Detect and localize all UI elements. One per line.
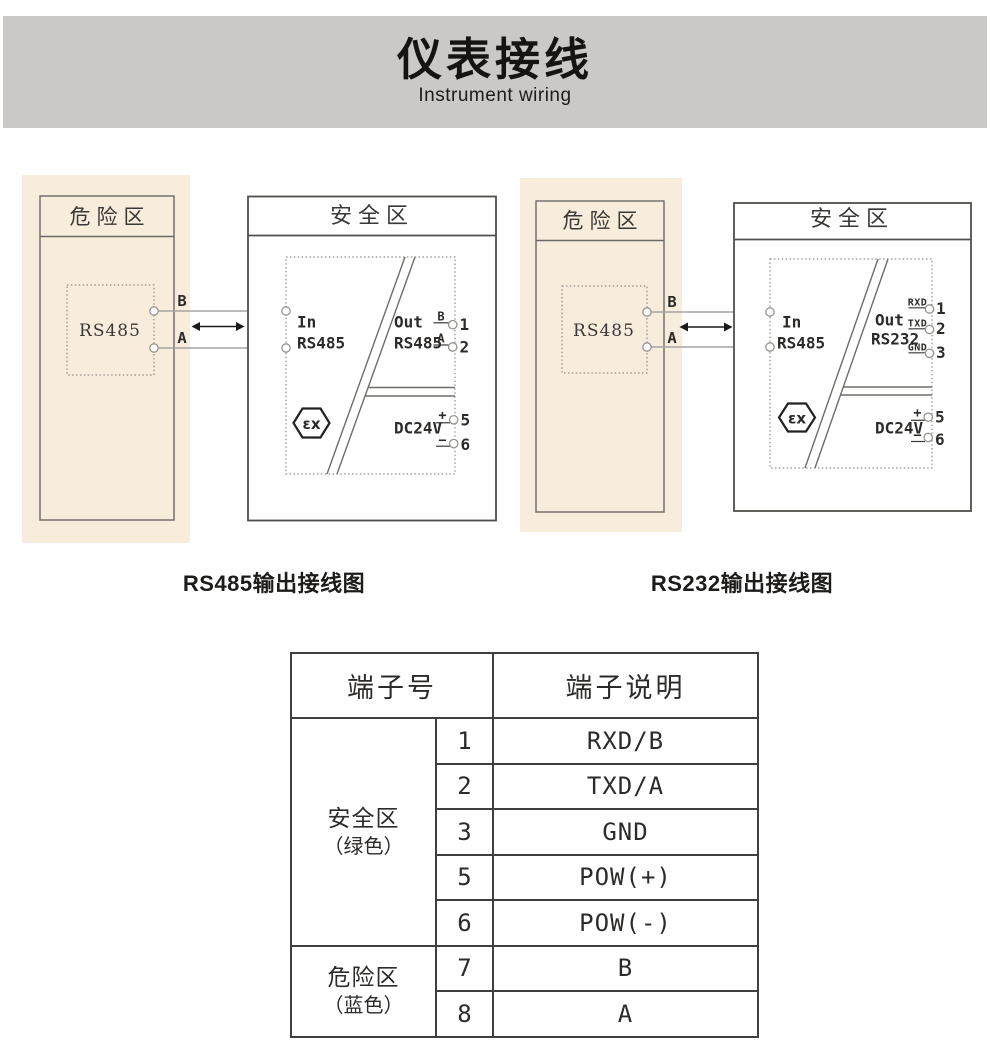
zone-cell-safe: 安全区 （绿色）	[291, 718, 436, 946]
page-header: 仪表接线 Instrument wiring	[3, 16, 987, 128]
danger-zone-title: 危险区	[70, 205, 151, 229]
rs485-wiring-diagram: 危险区 RS485 B A 7 8 安全区	[22, 175, 496, 543]
bidirectional-arrow	[680, 323, 733, 332]
terminal-1-number: 1	[936, 299, 946, 318]
device-terminal-a	[150, 344, 158, 352]
terminal-desc-cell: B	[493, 946, 758, 992]
bidirectional-arrow	[192, 322, 245, 331]
wire-label-b: B	[177, 292, 186, 310]
rs232-diagram-caption: RS232输出接线图	[612, 566, 872, 598]
module-terminal-7	[766, 308, 774, 316]
terminal-6-circle	[924, 433, 932, 441]
rs232-wiring-diagram: 危险区 RS485 B A 7 8 安全区	[520, 178, 971, 532]
device-terminal-b	[643, 308, 651, 316]
page-title: 仪表接线	[3, 16, 987, 82]
zone-color-note: （蓝色）	[292, 993, 435, 1019]
terminal-1-number: 1	[460, 315, 470, 334]
module-terminal-8	[766, 343, 774, 351]
terminal-1-circle	[449, 321, 457, 329]
zone-name: 安全区	[292, 804, 435, 834]
terminal-6-number: 6	[935, 430, 945, 449]
device-terminal-b	[150, 307, 158, 315]
terminal-table: 端子号 端子说明 安全区 （绿色） 1 RXD/B 2 TXD/A 3 GND …	[290, 652, 759, 1038]
in-type-label: RS485	[777, 334, 825, 353]
page-subtitle: Instrument wiring	[3, 86, 987, 105]
safe-zone-box	[248, 197, 496, 521]
safe-zone-title: 安全区	[330, 204, 414, 229]
rs485-diagram-caption: RS485输出接线图	[144, 566, 404, 598]
power-plus-sign: +	[438, 408, 446, 424]
out-label: Out	[394, 313, 423, 332]
power-label: DC24V	[394, 419, 443, 438]
terminal-6-number: 6	[461, 435, 471, 454]
out-type-label: RS485	[394, 334, 442, 353]
terminal-2-number: 2	[936, 319, 946, 338]
terminal-1-circle	[925, 305, 933, 313]
device-terminal-a	[643, 343, 651, 351]
out-signal-gnd-label: GND	[908, 343, 928, 354]
in-label: In	[297, 313, 316, 332]
wire-label-a: A	[667, 329, 677, 347]
zone-cell-danger: 危险区 （蓝色）	[291, 946, 436, 1037]
zone-color-note: （绿色）	[292, 834, 435, 860]
terminal-desc-cell: TXD/A	[493, 764, 758, 810]
wire-label-b: B	[667, 293, 676, 311]
ex-mark-text: εx	[302, 415, 320, 433]
terminal-num-cell: 7	[436, 946, 493, 992]
terminal-num-cell: 2	[436, 764, 493, 810]
page: 仪表接线 Instrument wiring 危险区 RS485 B A 7 8	[0, 0, 990, 1058]
terminal-num-cell: 5	[436, 855, 493, 901]
terminal-5-circle	[924, 413, 932, 421]
terminal-2-circle	[925, 325, 933, 333]
terminal-desc-cell: POW(+)	[493, 855, 758, 901]
out-signal-a-label: A	[437, 332, 445, 346]
terminal-5-circle	[450, 416, 458, 424]
safe-zone-title: 安全区	[810, 207, 894, 232]
field-device-label: RS485	[79, 321, 141, 341]
table-header-row: 端子号 端子说明	[291, 653, 758, 718]
module-terminal-8	[282, 344, 290, 352]
terminal-desc-cell: A	[493, 991, 758, 1037]
terminal-num-cell: 8	[436, 991, 493, 1037]
out-signal-rxd-label: RXD	[908, 298, 928, 309]
terminal-desc-cell: GND	[493, 809, 758, 855]
wire-label-a: A	[177, 329, 187, 347]
table-row: 安全区 （绿色） 1 RXD/B	[291, 718, 758, 764]
danger-zone-title: 危险区	[563, 209, 644, 233]
in-type-label: RS485	[297, 334, 345, 353]
hazard-area-background	[22, 175, 190, 543]
ex-mark-text: εx	[788, 410, 806, 428]
terminal-no-header: 端子号	[291, 653, 493, 718]
terminal-3-circle	[925, 349, 933, 357]
out-signal-b-label: B	[437, 310, 444, 324]
terminal-5-number: 5	[935, 408, 945, 427]
zone-name: 危险区	[292, 963, 435, 993]
terminal-3-number: 3	[936, 343, 946, 362]
terminal-6-circle	[450, 439, 458, 447]
terminal-2-number: 2	[460, 338, 470, 357]
terminal-num-cell: 6	[436, 900, 493, 946]
terminal-2-circle	[449, 343, 457, 351]
arrow-head-right	[236, 322, 245, 331]
module-terminal-7	[282, 307, 290, 315]
table-row: 危险区 （蓝色） 7 B	[291, 946, 758, 992]
arrow-head-right	[724, 323, 733, 332]
in-label: In	[782, 313, 801, 332]
wiring-diagrams: 危险区 RS485 B A 7 8 安全区	[0, 160, 990, 600]
terminal-desc-header: 端子说明	[493, 653, 758, 718]
out-label: Out	[875, 311, 904, 330]
terminal-desc-cell: POW(-)	[493, 900, 758, 946]
field-device-label: RS485	[573, 321, 635, 341]
arrow-head-left	[192, 322, 201, 331]
terminal-desc-cell: RXD/B	[493, 718, 758, 764]
power-plus-sign: +	[913, 405, 921, 421]
out-signal-txd-label: TXD	[908, 319, 928, 330]
terminal-5-number: 5	[461, 411, 471, 430]
terminal-num-cell: 3	[436, 809, 493, 855]
terminal-num-cell: 1	[436, 718, 493, 764]
